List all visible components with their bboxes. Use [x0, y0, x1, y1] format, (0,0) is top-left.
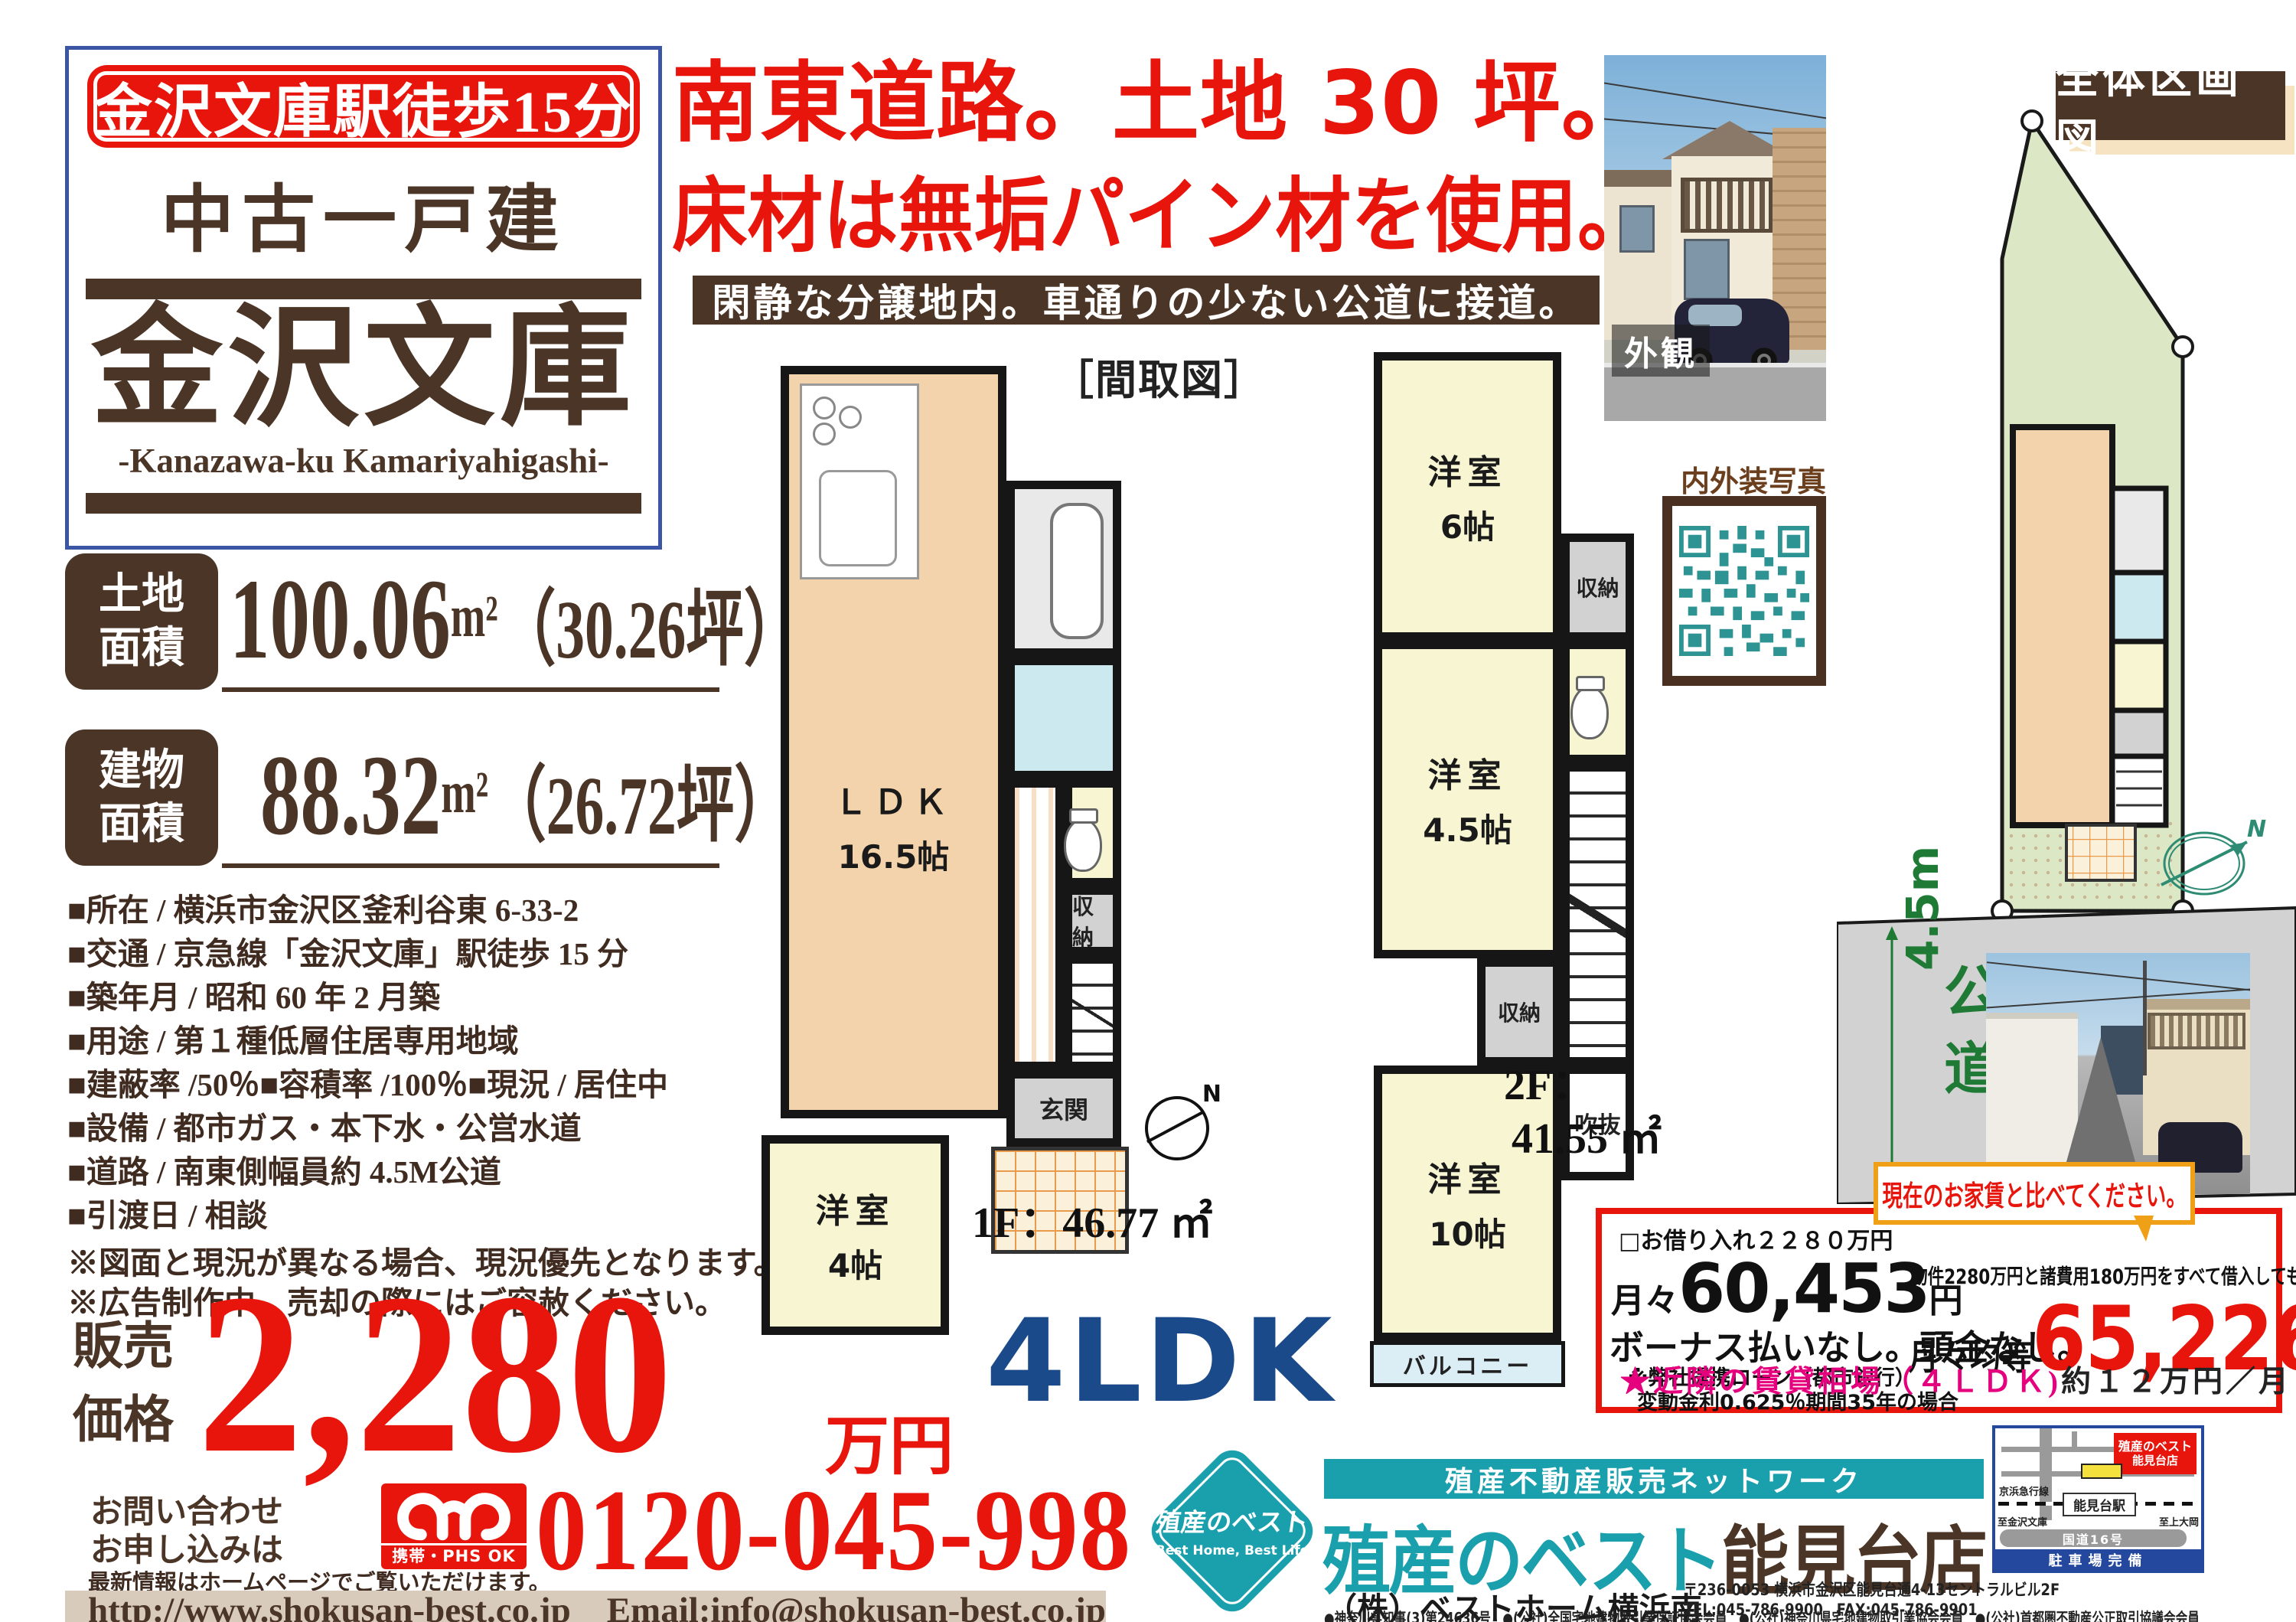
room-washroom: [1006, 657, 1121, 779]
building-tag-line1: 建物: [99, 744, 184, 798]
closet-2f-a: 収納: [1561, 534, 1634, 641]
building-area-value: 88.32m²（26.72坪）: [260, 729, 792, 861]
company-address-line: 〒236-0053 横浜市金沢区能見台通4-13セントラルビル2F: [1684, 1580, 2060, 1600]
map-direction-left: 至金沢文庫: [1998, 1514, 2047, 1529]
qr-code: [1662, 496, 1826, 686]
room-toilet-2f: [1561, 641, 1634, 763]
stove-burner: [839, 406, 862, 429]
map-road-h1: [2001, 1447, 2124, 1452]
toilet-icon: [1064, 818, 1102, 872]
toilet-icon-2f: [1570, 686, 1609, 739]
detail-zoning: ■用途 / 第１種低層住居専用地域: [67, 1015, 519, 1061]
map-store-line1: 殖産のベスト: [2118, 1440, 2192, 1454]
company-logo: 殖産のベスト Best Home, Best Life: [1146, 1445, 1318, 1617]
room-toilet-1f: [1064, 779, 1121, 886]
west6-label: 洋室 6帖: [1382, 361, 1553, 632]
headline-line2: 床材は無垢パイン材を使用。: [672, 150, 1653, 268]
map-store-marker: [2081, 1464, 2122, 1479]
loan-box: □お借り入れ２２８０万円 月々60,453円 ボーナス払いなし。頭金なし。 ※弊…: [1596, 1208, 2282, 1413]
license-line: ●神奈川県知事(3)第24636号 ●(公社)全国宅地建物取引業保証協会会員 ●…: [1324, 1606, 2200, 1622]
inquiry-line1: お問い合わせ: [90, 1493, 283, 1531]
network-band-text: 殖産不動産販売ネットワーク: [1445, 1458, 1863, 1500]
west10-size: 10帖: [1429, 1209, 1505, 1255]
closet-2f-b-label: 収納: [1486, 967, 1553, 1057]
detail-handover: ■引渡日 / 相談: [67, 1190, 268, 1235]
room-west4: 洋室 4帖: [762, 1135, 949, 1335]
rent-compare-text: 現在のお家賃と比べてください。: [1882, 1173, 2187, 1214]
ldk-label: ＬＤＫ 16.5帖: [789, 543, 998, 1110]
hallway-1f: [1006, 779, 1064, 1070]
area-1f: 1F：46.77 ㎡: [972, 1188, 1212, 1250]
detail-coverage: ■建蔽率 /50％■容積率 /100％■現況 / 居住中: [67, 1059, 668, 1105]
price-label: 販売 価格: [73, 1310, 174, 1457]
map-parking-banner: 駐車場完備: [1995, 1549, 2201, 1570]
detail-facilities: ■設備 / 都市ガス・本下水・公営水道: [67, 1102, 582, 1148]
street-wire: [1987, 961, 2250, 992]
url-text: http://www.shokusan-best.co.jp Email:inf…: [88, 1580, 1106, 1622]
building-underline: [222, 863, 719, 868]
power-line: [1604, 81, 1826, 122]
map-station-text: 能見台駅: [2073, 1495, 2125, 1514]
detail-location: ■所在 / 横浜市金沢区釜利谷東 6-33-2: [67, 884, 579, 930]
street-house-balcony: [2148, 1013, 2245, 1049]
property-header-box: 金沢文庫駅徒歩15分 中古一戸建 金沢文庫 -Kanazawa-ku Kamar…: [65, 46, 662, 550]
map-route16: 国道16号: [2000, 1529, 2187, 1547]
house-window: [1684, 239, 1730, 300]
property-title: 金沢文庫: [69, 301, 658, 439]
map-store-box: 殖産のベスト 能見台店: [2114, 1433, 2197, 1474]
ldk-name: ＬＤＫ: [834, 775, 954, 824]
area-2f-line1: 2F：: [1504, 1050, 1594, 1112]
detail-access: ■交通 / 京急線「金沢文庫」駅徒歩 15 分: [67, 928, 628, 974]
room-west6: 洋室 6帖: [1374, 352, 1561, 641]
west6-size: 6帖: [1440, 501, 1495, 548]
logo-sub-text: Best Home, Best Life: [1146, 1543, 1318, 1558]
room-west45: 洋室 4.5帖: [1374, 641, 1561, 958]
closet-2f-b: 収納: [1477, 958, 1561, 1066]
inquiry-label: お問い合わせ お申し込みは: [90, 1493, 283, 1570]
building-area-tag: 建物 面積: [65, 729, 218, 866]
rent-label: ★近隣の賃貸相場（４ＬＤＫ): [1620, 1366, 2061, 1398]
phone-number: 0120-045-998: [536, 1464, 1132, 1597]
siteplan-compass-n: N: [2247, 816, 2266, 843]
property-title-romaji: -Kanazawa-ku Kamariyahigashi-: [69, 441, 658, 481]
flyer-page: 金沢文庫駅徒歩15分 中古一戸建 金沢文庫 -Kanazawa-ku Kamar…: [0, 0, 2296, 1622]
callout-tail: [2134, 1216, 2154, 1242]
loan-rent-note: ★近隣の賃貸相場（４ＬＤＫ)約１２万円／月: [1620, 1358, 2291, 1401]
main-house-balcony: [1681, 178, 1773, 233]
building-area-unit: m²: [441, 759, 488, 825]
land-area-number: 100.06: [230, 556, 451, 683]
detail-built: ■築年月 / 昭和 60 年 2 月築: [67, 971, 440, 1017]
loan-monthly-label: 月々: [1611, 1281, 1678, 1320]
detail-road: ■道路 / 南東側幅員約 4.5M公道: [67, 1146, 501, 1192]
genkan-label: 玄関: [1015, 1079, 1113, 1138]
map-store-line2: 能見台店: [2132, 1454, 2178, 1467]
loan-monthly-amount: 60,453: [1678, 1249, 1929, 1328]
map-road-stub: [2072, 1431, 2077, 1448]
station-walk-badge: 金沢文庫駅徒歩15分: [87, 65, 640, 148]
compass-needle: [1146, 1111, 1205, 1144]
west4-label: 洋室 4帖: [770, 1144, 941, 1327]
layout-type: 4LDK: [986, 1295, 1336, 1428]
exterior-photo: 外観: [1604, 55, 1826, 421]
compass-n: N: [1202, 1081, 1221, 1108]
floorplan-2f: 洋室 6帖 収納 洋室 4.5帖 収納 吹抜 洋室 10帖: [1374, 346, 1634, 1387]
loan-total-note: 物件2280万円と諸費用180万円をすべて借入しても: [1911, 1260, 2296, 1290]
price-label-line2: 価格: [73, 1384, 174, 1457]
access-map: 殖産のベスト 能見台店 京浜急行線 能見台駅 至金沢文庫 至上大岡 国道16号 …: [1992, 1425, 2204, 1573]
house-window: [1619, 205, 1655, 253]
freedial-loops: [381, 1483, 527, 1543]
land-underline: [222, 687, 719, 692]
building-area-tsubo: （26.72坪）: [488, 761, 792, 852]
stairs-1f: [1064, 955, 1121, 1070]
land-area-tsubo: （30.26坪）: [498, 585, 802, 676]
entrance-genkan: 玄関: [1006, 1070, 1121, 1147]
west4-name: 洋室: [816, 1183, 895, 1232]
land-area-tag: 土地 面積: [65, 553, 218, 690]
map-station: 能見台駅: [2063, 1493, 2136, 1516]
rent-value: 約１２万円／月: [2061, 1366, 2291, 1398]
land-area-unit: m²: [451, 583, 498, 649]
logo-text: 殖産のベスト Best Home, Best Life: [1146, 1502, 1318, 1558]
headline-line1: 南東道路。土地 30 坪。: [672, 32, 1649, 158]
map-parking-text: 駐車場完備: [2049, 1550, 2148, 1570]
closet-1f: 収納: [1064, 886, 1121, 955]
stove-burner: [813, 423, 836, 445]
land-area-value: 100.06m²（30.26坪）: [230, 553, 802, 685]
building-area-number: 88.32: [260, 732, 441, 859]
bathtub: [1050, 503, 1104, 639]
network-band: 殖産不動産販売ネットワーク: [1324, 1459, 1984, 1499]
street-photo: [1986, 953, 2250, 1194]
qr-caption: 内外装写真: [1673, 458, 1834, 500]
map-rail-name: 京浜急行線: [1999, 1483, 2049, 1498]
divider-bar-bottom: [86, 493, 641, 514]
west45-label: 洋室 4.5帖: [1382, 649, 1553, 950]
balcony: バルコニー: [1370, 1341, 1565, 1387]
logo-main-text: 殖産のベスト: [1144, 1502, 1321, 1539]
map-route-text: 国道16号: [2063, 1529, 2124, 1548]
headline-banner-text: 閑静な分譲地内。車通りの少ない公道に接道。: [713, 273, 1580, 328]
closet-1f-label: 収納: [1072, 895, 1113, 947]
closet-2f-a-label: 収納: [1570, 542, 1626, 632]
west4-size: 4帖: [828, 1240, 882, 1287]
property-type: 中古一戸建: [69, 160, 658, 266]
area-2f-line2: 41.55 ㎡: [1512, 1104, 1662, 1166]
land-tag-line1: 土地: [99, 568, 184, 622]
ldk-size: 16.5帖: [838, 831, 950, 878]
room-ldk: ＬＤＫ 16.5帖: [781, 366, 1006, 1118]
west45-name: 洋室: [1428, 748, 1508, 797]
freedial-icon: 携帯・PHS OK: [381, 1483, 527, 1569]
balcony-label: バルコニー: [1374, 1345, 1561, 1383]
building-tag-line2: 面積: [99, 798, 184, 851]
divider-bar-top: [86, 279, 641, 299]
land-tag-line2: 面積: [99, 622, 184, 675]
station-walk-text: 金沢文庫駅徒歩15分: [94, 64, 633, 148]
headline-banner: 閑静な分譲地内。車通りの少ない公道に接道。: [693, 276, 1600, 325]
map-direction-right: 至上大岡: [2159, 1514, 2199, 1529]
price-label-line1: 販売: [73, 1310, 174, 1384]
compass-icon: N: [1145, 1096, 1209, 1160]
url-strip: http://www.shokusan-best.co.jp Email:inf…: [65, 1591, 1106, 1622]
qr-code-pattern: [1679, 513, 1809, 669]
west10-name: 洋室: [1428, 1152, 1508, 1201]
west6-name: 洋室: [1428, 445, 1508, 494]
road-width-label: 4.5m: [1896, 846, 1949, 971]
room-bath: [1006, 481, 1121, 657]
stairs-2f: [1561, 763, 1634, 1066]
stove-burner: [813, 397, 836, 419]
west45-size: 4.5帖: [1423, 804, 1512, 851]
